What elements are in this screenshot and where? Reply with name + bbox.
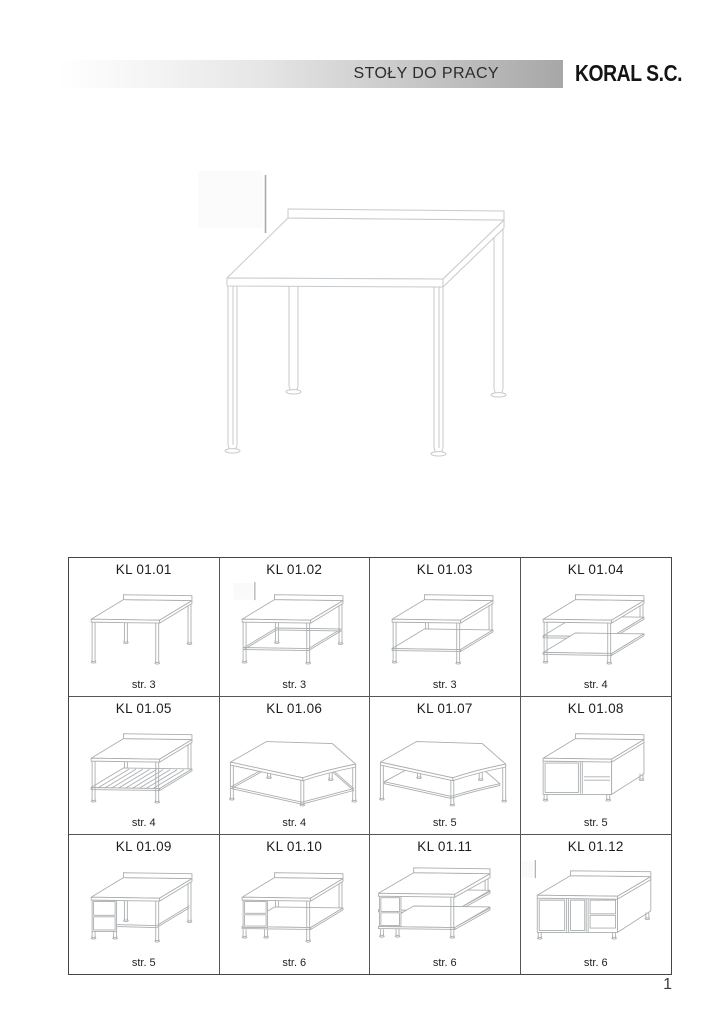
section-title: STOŁY DO PRACY — [354, 65, 500, 83]
catalog-cell-kl-01-10: KL 01.10str. 6 — [220, 835, 371, 974]
product-code: KL 01.11 — [417, 838, 472, 855]
product-drawing-shelves-drawers — [371, 860, 518, 952]
section-title-bar: STOŁY DO PRACY — [57, 60, 563, 88]
catalog-cell-kl-01-04: KL 01.04str. 4 — [521, 558, 672, 697]
catalog-cell-kl-01-12: KL 01.12str. 6 — [521, 835, 672, 974]
product-drawing-cabinet-drawers — [522, 860, 669, 952]
product-code: KL 01.04 — [568, 561, 624, 578]
product-code: KL 01.09 — [116, 838, 172, 855]
catalog-cell-kl-01-08: KL 01.08str. 5 — [521, 697, 672, 836]
page-number: 1 — [620, 976, 672, 994]
catalog-cell-kl-01-11: KL 01.11str. 6 — [370, 835, 521, 974]
product-drawing-grid-shelf — [70, 721, 217, 813]
page-reference: str. 5 — [433, 817, 457, 830]
catalog-cell-kl-01-05: KL 01.05str. 4 — [69, 697, 220, 836]
product-code: KL 01.07 — [417, 700, 473, 717]
hero-illustration — [190, 165, 530, 475]
product-code: KL 01.12 — [568, 838, 624, 855]
catalog-cell-kl-01-02: KL 01.02str. 3 — [220, 558, 371, 697]
product-code: KL 01.01 — [116, 561, 172, 578]
page-reference: str. 6 — [433, 957, 457, 970]
page-reference: str. 3 — [282, 679, 306, 692]
catalog-grid: KL 01.01str. 3KL 01.02str. 3KL 01.03str.… — [68, 557, 672, 975]
product-drawing-rails — [221, 582, 368, 674]
product-drawing-cabinet — [522, 721, 669, 813]
product-drawing-drawers-shelf — [221, 860, 368, 952]
product-drawing-plain — [70, 582, 217, 674]
page-reference: str. 4 — [282, 817, 306, 830]
product-drawing-corner-rails — [221, 721, 368, 813]
product-code: KL 01.03 — [417, 561, 473, 578]
page-reference: str. 3 — [132, 679, 156, 692]
page-reference: str. 4 — [132, 817, 156, 830]
product-code: KL 01.02 — [266, 561, 322, 578]
page-reference: str. 3 — [433, 679, 457, 692]
catalog-page: STOŁY DO PRACY KORAL S.C. KL 01.01str. 3… — [0, 0, 725, 1024]
page-reference: str. 4 — [584, 679, 608, 692]
page-reference: str. 5 — [584, 817, 608, 830]
product-drawing-drawers-desk — [70, 860, 217, 952]
page-reference: str. 6 — [282, 957, 306, 970]
product-drawing-shelf — [371, 582, 518, 674]
catalog-cell-kl-01-09: KL 01.09str. 5 — [69, 835, 220, 974]
product-code: KL 01.10 — [266, 838, 322, 855]
page-reference: str. 5 — [132, 957, 156, 970]
page-reference: str. 6 — [584, 957, 608, 970]
brand-logo: KORAL S.C. — [575, 60, 682, 86]
product-code: KL 01.05 — [116, 700, 172, 717]
hero-table-drawing — [190, 165, 530, 475]
product-code: KL 01.08 — [568, 700, 624, 717]
catalog-cell-kl-01-06: KL 01.06str. 4 — [220, 697, 371, 836]
product-drawing-two-shelves — [522, 582, 669, 674]
catalog-cell-kl-01-03: KL 01.03str. 3 — [370, 558, 521, 697]
catalog-cell-kl-01-01: KL 01.01str. 3 — [69, 558, 220, 697]
product-code: KL 01.06 — [266, 700, 322, 717]
product-drawing-corner-shelf — [371, 721, 518, 813]
catalog-cell-kl-01-07: KL 01.07str. 5 — [370, 697, 521, 836]
